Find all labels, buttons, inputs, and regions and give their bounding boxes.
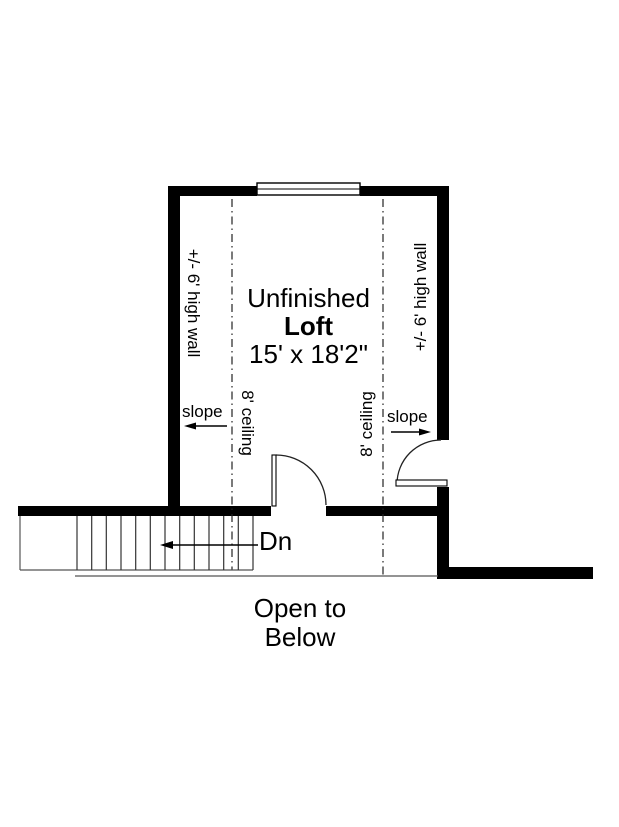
window-symbol [257, 183, 360, 195]
walls [18, 186, 593, 579]
ceiling-label-left: 8' ceiling [237, 390, 257, 456]
exterior-door-swing [396, 440, 447, 486]
open-to-below-line1: Open to [200, 593, 400, 624]
stair-treads [77, 516, 253, 570]
room-title-line1: Unfinished [188, 283, 429, 314]
ceiling-break-lines [232, 199, 383, 576]
staircase [20, 516, 253, 570]
room-dimensions: 15' x 18'2" [188, 339, 429, 370]
floor-plan-drawing [0, 0, 619, 827]
wall-height-label-left: +/- 6' high wall [183, 249, 203, 358]
slope-label-left: slope [182, 402, 223, 422]
stairs-direction-label: Dn [259, 526, 292, 557]
room-title-line2: Loft [188, 311, 429, 342]
ceiling-label-right: 8' ceiling [357, 391, 377, 457]
slope-label-right: slope [387, 407, 428, 427]
open-to-below-line2: Below [200, 622, 400, 653]
slope-arrow-right-icon [391, 429, 431, 436]
floor-plan: Unfinished Loft 15' x 18'2" +/- 6' high … [0, 0, 619, 827]
slope-arrow-left-icon [184, 423, 227, 430]
wall-height-label-right: +/- 6' high wall [411, 243, 431, 352]
interior-door-swing [272, 455, 326, 506]
